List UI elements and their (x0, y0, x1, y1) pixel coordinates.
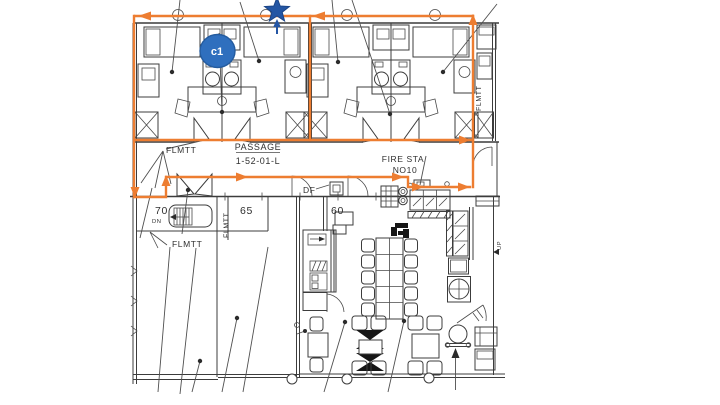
star-icon (265, 0, 290, 21)
flmtt-passage-label: FLMTT (166, 145, 196, 155)
flmtt-vertical-left-label: FLMTT (224, 212, 231, 238)
mess-table (362, 238, 418, 319)
deck-plan-svg: FLMTT PASSAGE 1-52-01-L FIRE STA NO10 DF… (0, 0, 720, 405)
room-70-number: 70 (155, 205, 168, 217)
marker-c1: c1 (200, 35, 235, 68)
passage-name: PASSAGE (235, 142, 282, 152)
flmtt-lower-label: FLMTT (172, 239, 202, 249)
fire-station-label-2: NO10 (393, 165, 418, 175)
serving-counter-left (303, 212, 353, 312)
passage-doors (177, 147, 492, 196)
up-label: UP (497, 241, 503, 250)
cabin-1 (135, 10, 309, 143)
room-60-number: 60 (331, 205, 344, 217)
drinking-fountain (316, 182, 343, 195)
floor-plan: FLMTT PASSAGE 1-52-01-L FIRE STA NO10 DF… (130, 0, 505, 394)
stool-glyph (391, 223, 409, 238)
fire-station-label-1: FIRE STA (382, 154, 424, 164)
room-65-number: 65 (240, 205, 253, 217)
floorplan-screenshot: FLMTT PASSAGE 1-52-01-L FIRE STA NO10 DF… (0, 0, 720, 405)
flmtt-vertical-right-label: FLMTT (476, 85, 483, 111)
cabin-2 (304, 10, 478, 143)
dining-tables (295, 316, 443, 375)
df-label: DF (303, 185, 316, 195)
passage-code: 1-52-01-L (236, 156, 280, 166)
dn-label: DN (152, 219, 162, 225)
arrow-up-icon (273, 19, 281, 34)
marker-c1-label: c1 (211, 46, 223, 58)
